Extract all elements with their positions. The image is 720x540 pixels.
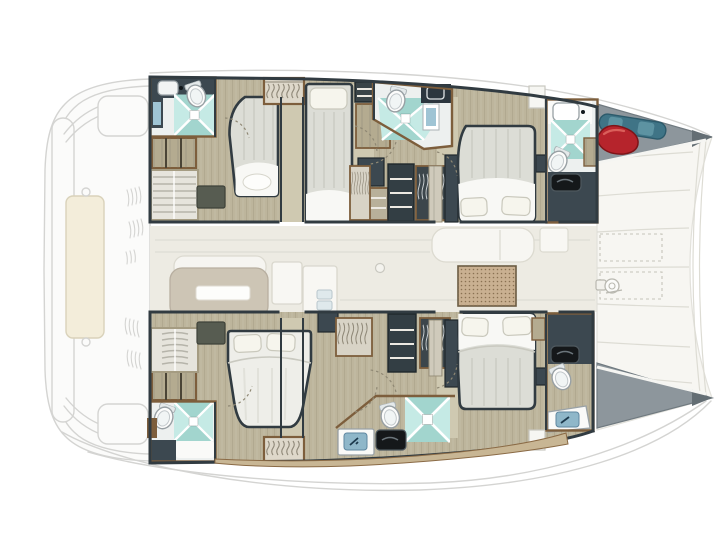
port-hanging-locker (264, 78, 304, 104)
counter-black (551, 174, 581, 191)
sink-icon (553, 103, 579, 121)
forward-sofa-ghost (432, 228, 534, 262)
shower-icon (405, 397, 450, 442)
starboard-aft-cabin-bed (228, 331, 311, 427)
rug (197, 186, 225, 208)
starboard-shelf-unit (152, 372, 196, 400)
pillow (234, 334, 262, 352)
starboard-fwd-bed (458, 314, 535, 409)
counter-black (376, 430, 406, 450)
davit-arm-ghost (98, 96, 148, 136)
pillow (310, 88, 347, 109)
woven-mat (458, 266, 516, 306)
port-hull (150, 77, 598, 223)
starboard-aft-bathroom (147, 402, 216, 463)
vanity-with-basin (338, 429, 374, 455)
port-fwd-bed (458, 126, 535, 221)
port-fwd-bathroom (545, 99, 598, 223)
mirror-icon (153, 102, 161, 125)
pillow (461, 197, 488, 216)
pillow (502, 196, 531, 215)
mast-foot-ghost (376, 264, 385, 273)
port-aft-bathroom (151, 77, 216, 137)
floorplan-svg (0, 0, 720, 540)
salon-ghost (150, 226, 597, 318)
mirror-icon (426, 108, 436, 126)
starboard-hanging-locker (264, 437, 304, 461)
starboard-stairs (151, 328, 198, 372)
table-insert-ghost (196, 286, 250, 300)
catamaran-floorplan-figure (0, 0, 720, 540)
port-mid-bathroom (373, 82, 452, 149)
starboard-hull (147, 312, 594, 467)
vanity-counter (176, 441, 214, 458)
sink-icon (158, 81, 178, 95)
cockpit-table-ghost (66, 196, 104, 338)
counter-black (551, 346, 579, 363)
davit-arm-ghost (98, 404, 148, 444)
port-corridor (281, 97, 303, 222)
port-shelf-unit (152, 138, 196, 168)
pillow (503, 316, 532, 335)
port-stairs (151, 170, 198, 220)
port-aft-cabin-bed (229, 97, 278, 196)
rug (197, 322, 225, 344)
shower-icon (174, 402, 213, 441)
port-mid-cabin-bed (306, 84, 352, 222)
pillow (462, 317, 489, 336)
